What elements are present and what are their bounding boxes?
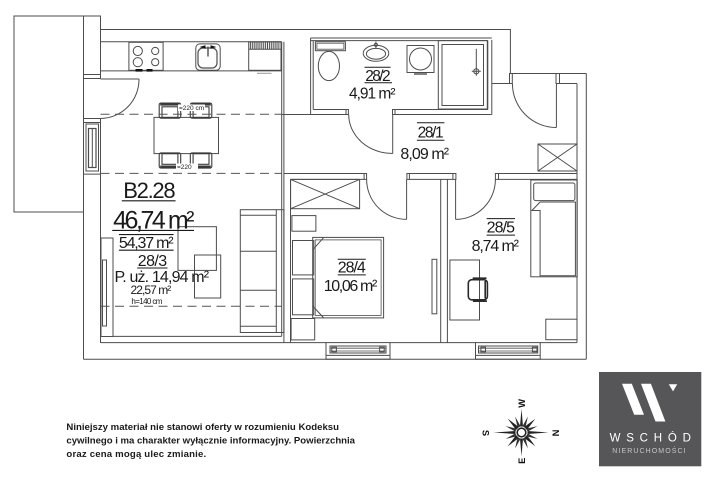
svg-text:=220: =220 <box>177 164 192 171</box>
svg-text:S: S <box>481 430 491 436</box>
svg-text:E: E <box>517 458 527 464</box>
svg-text:8,74 m²: 8,74 m² <box>472 238 520 255</box>
svg-text:oraz cena mogą ulec zmianie.: oraz cena mogą ulec zmianie. <box>66 449 206 460</box>
svg-text:Niniejszy materiał nie stanowi: Niniejszy materiał nie stanowi oferty w … <box>66 422 339 433</box>
svg-text:W: W <box>517 399 527 408</box>
svg-text:28/1: 28/1 <box>418 125 444 142</box>
svg-text:NIERUCHOMOŚCI: NIERUCHOMOŚCI <box>612 446 685 455</box>
svg-text:cywilnego i ma charakter wyłąc: cywilnego i ma charakter wyłącznie infor… <box>66 436 355 447</box>
svg-text:B2.28: B2.28 <box>123 178 175 203</box>
svg-text:22,57 m²: 22,57 m² <box>131 283 172 297</box>
svg-text:N: N <box>550 430 560 437</box>
svg-text:10,06 m²: 10,06 m² <box>324 278 378 295</box>
svg-text:28/4: 28/4 <box>338 259 366 276</box>
svg-text:4,91 m²: 4,91 m² <box>349 86 396 103</box>
svg-text:28/5: 28/5 <box>487 219 515 236</box>
svg-text:h=140 cm: h=140 cm <box>131 297 162 306</box>
svg-text:8,09 m²: 8,09 m² <box>400 146 449 163</box>
svg-text:=220 cm: =220 cm <box>179 105 204 112</box>
